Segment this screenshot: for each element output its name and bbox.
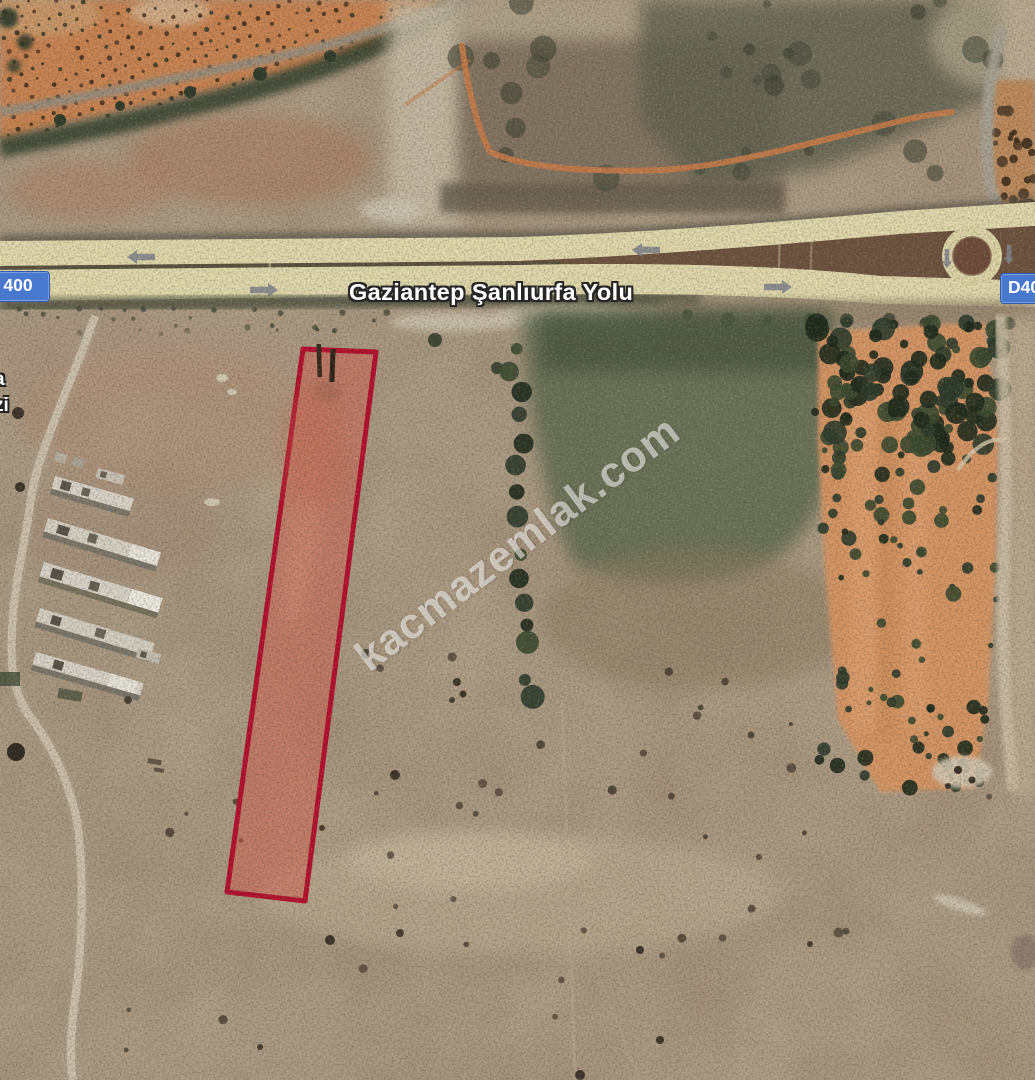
clipped-map-label-bottom: zi <box>0 395 9 417</box>
image-grain <box>0 0 1035 1080</box>
route-shield-d400-left: 400 <box>0 271 50 302</box>
clipped-map-label-top: a <box>0 369 5 391</box>
satellite-map-image: Gaziantep Şanlıurfa Yolu 400 D40 a zi ka… <box>0 0 1035 1080</box>
route-shield-d400-right: D40 <box>1000 273 1035 304</box>
satellite-terrain-layer <box>0 0 1035 1080</box>
